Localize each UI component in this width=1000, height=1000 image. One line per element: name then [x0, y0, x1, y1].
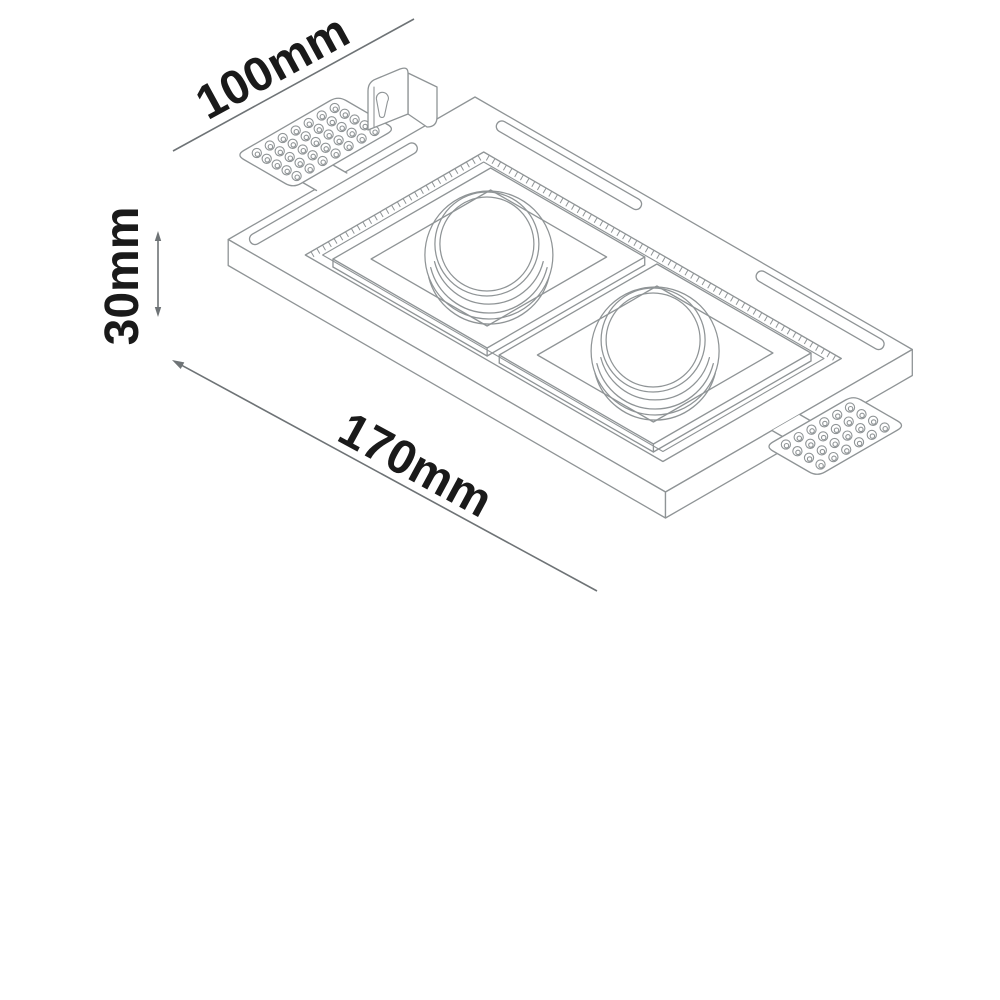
dimension-depth-arrow-bottom [155, 307, 161, 317]
downlight-fixture [228, 68, 912, 518]
mounting-bracket [368, 68, 437, 130]
dimension-length-label: 170mm [330, 403, 501, 529]
diagram-canvas: 100mm 30mm 170mm [0, 0, 1000, 1000]
dimension-depth-arrow-top [155, 231, 161, 241]
dimension-depth-30mm: 30mm [96, 207, 161, 346]
dimension-length-arrow [172, 360, 184, 369]
dimension-depth-label: 30mm [96, 207, 149, 346]
fixture-technical-drawing: 100mm 30mm 170mm [0, 0, 1000, 1000]
